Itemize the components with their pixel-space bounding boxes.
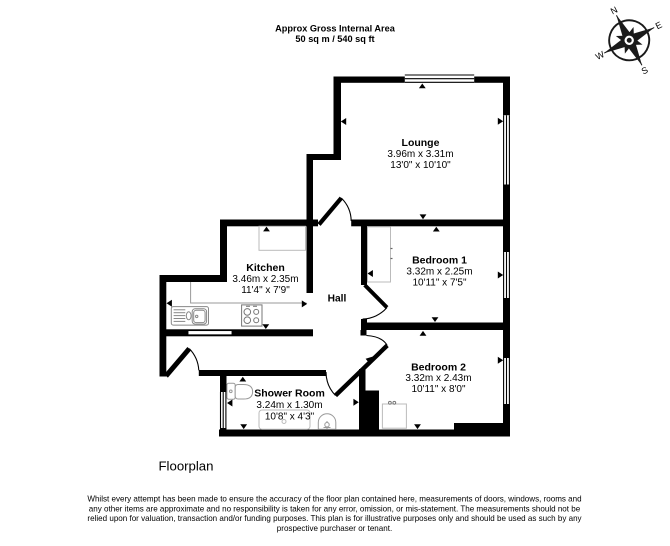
svg-text:10'11" x 8'0": 10'11" x 8'0" [411,384,466,395]
svg-text:relied upon for valuation, tra: relied upon for valuation, transaction a… [87,514,581,523]
svg-text:10'11" x 7'5": 10'11" x 7'5" [412,278,467,289]
svg-text:W: W [594,49,607,62]
svg-text:3.32m x 2.43m: 3.32m x 2.43m [405,373,471,384]
svg-text:13'0" x 10'10": 13'0" x 10'10" [390,160,451,171]
svg-text:Shower Room: Shower Room [254,388,325,400]
svg-text:3.96m x 3.31m: 3.96m x 3.31m [387,149,453,160]
svg-text:11'4" x 7'9": 11'4" x 7'9" [241,285,290,296]
svg-text:Kitchen: Kitchen [246,262,285,274]
svg-text:S: S [640,65,650,77]
svg-text:Floorplan: Floorplan [159,459,214,474]
svg-text:Hall: Hall [328,294,347,305]
svg-text:E: E [654,20,664,32]
svg-text:50 sq m / 540 sq ft: 50 sq m / 540 sq ft [295,34,374,44]
svg-text:Lounge: Lounge [402,137,440,149]
svg-text:Approx Gross Internal Area: Approx Gross Internal Area [275,24,396,34]
svg-text:N: N [609,5,619,17]
svg-text:Bedroom 1: Bedroom 1 [412,255,467,267]
svg-text:10'8" x 4'3": 10'8" x 4'3" [265,412,315,423]
svg-text:prospective purchaser or tenan: prospective purchaser or tenant. [277,524,392,533]
svg-text:3.46m x 2.35m: 3.46m x 2.35m [232,274,298,285]
svg-text:3.32m x 2.25m: 3.32m x 2.25m [406,267,472,278]
svg-text:Bedroom 2: Bedroom 2 [411,362,466,374]
svg-text:any other items are approximat: any other items are approximate and no r… [89,504,581,513]
svg-text:Whilst every attempt has been: Whilst every attempt has been made to en… [87,495,581,504]
svg-text:3.24m x 1.30m: 3.24m x 1.30m [256,400,322,411]
